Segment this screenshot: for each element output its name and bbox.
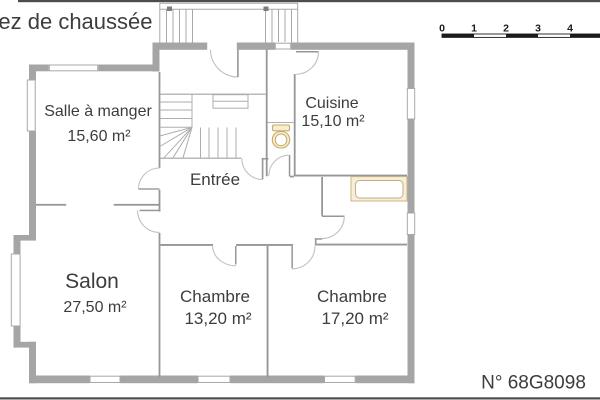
svg-text:Salle à manger: Salle à manger xyxy=(44,103,152,120)
svg-text:Chambre: Chambre xyxy=(180,287,250,306)
svg-text:0: 0 xyxy=(439,23,445,35)
svg-text:13,20 m²: 13,20 m² xyxy=(184,309,251,328)
svg-text:Entrée: Entrée xyxy=(190,170,240,189)
svg-text:Salon: Salon xyxy=(65,270,119,293)
svg-text:4: 4 xyxy=(567,23,573,35)
svg-text:1: 1 xyxy=(471,23,477,35)
svg-text:15,60 m²: 15,60 m² xyxy=(67,128,131,145)
svg-text:N° 68G8098: N° 68G8098 xyxy=(481,373,586,394)
svg-text:3: 3 xyxy=(535,23,541,35)
svg-text:Cuisine: Cuisine xyxy=(305,95,358,112)
svg-text:17,20 m²: 17,20 m² xyxy=(321,309,388,328)
svg-text:15,10 m²: 15,10 m² xyxy=(301,113,365,130)
svg-text:2: 2 xyxy=(503,23,509,35)
svg-text:27,50 m²: 27,50 m² xyxy=(63,299,127,316)
svg-text:Chambre: Chambre xyxy=(317,287,387,306)
svg-text:Rez de chaussée: Rez de chaussée xyxy=(0,9,153,34)
